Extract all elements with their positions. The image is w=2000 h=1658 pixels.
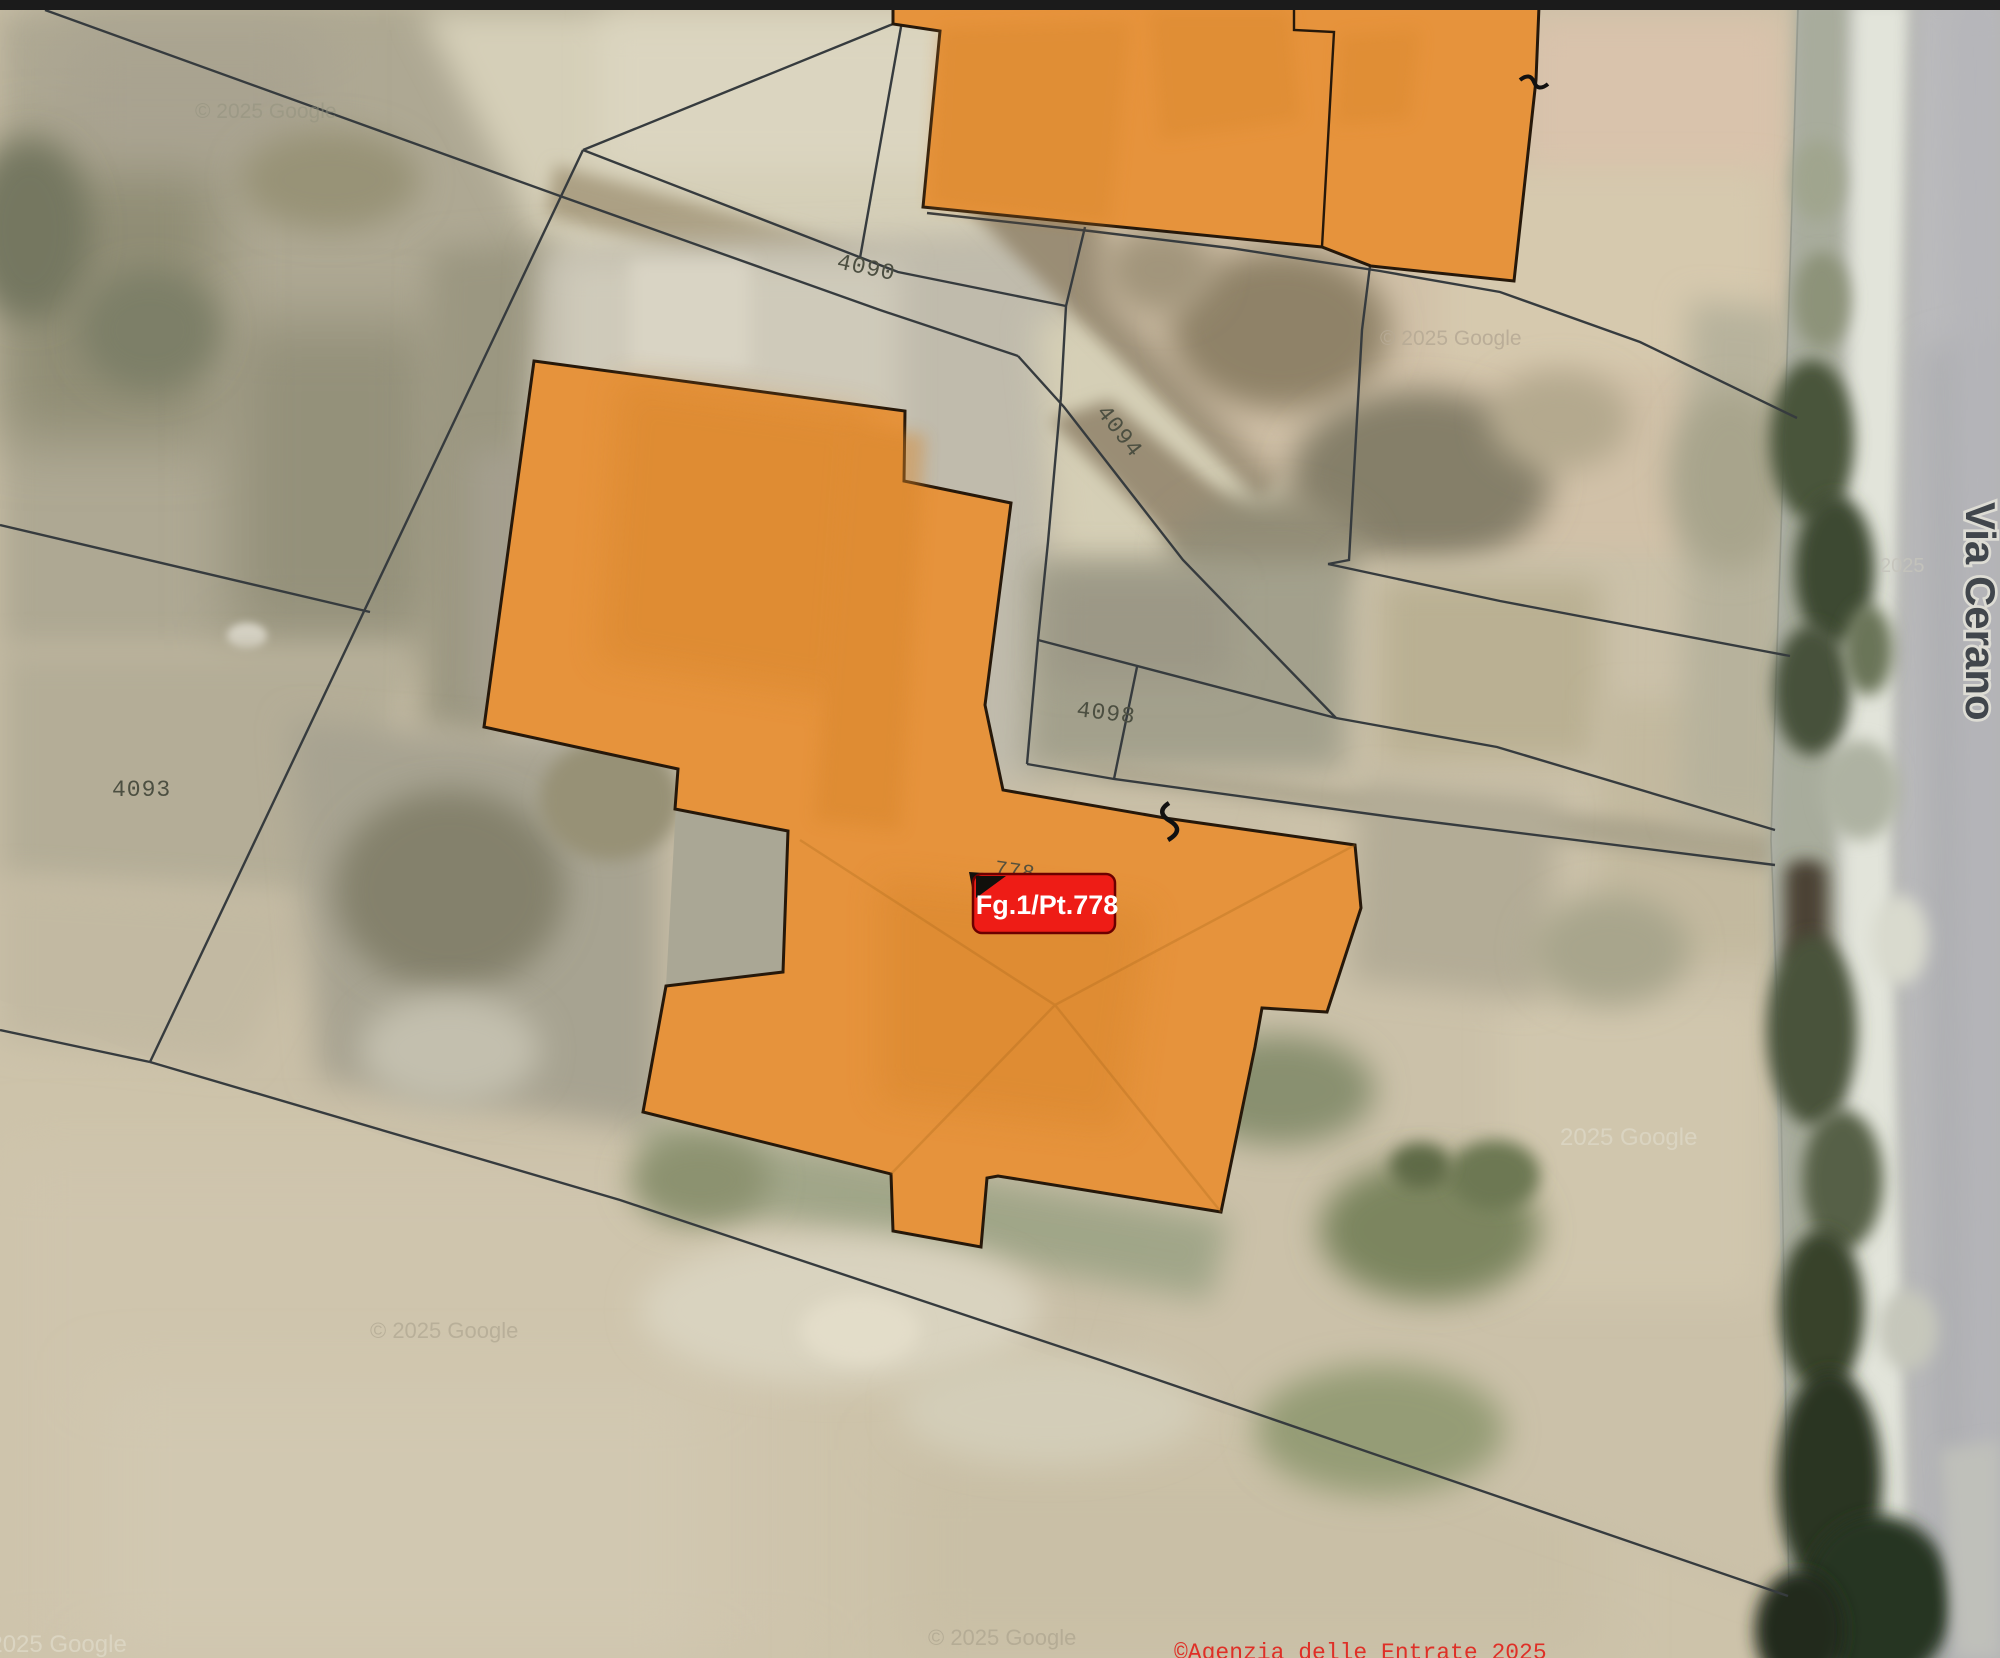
svg-text:© 2025 Google: © 2025 Google — [370, 1318, 518, 1343]
svg-text:2025: 2025 — [1880, 555, 1925, 577]
svg-text:©Agenzia delle Entrate 2025: ©Agenzia delle Entrate 2025 — [1174, 1640, 1547, 1658]
svg-text:© 2025 Google: © 2025 Google — [195, 100, 337, 123]
svg-text:Via Cerano: Via Cerano — [1957, 502, 2000, 721]
svg-text:© 2025 Google: © 2025 Google — [0, 1631, 127, 1658]
svg-text:4093: 4093 — [112, 777, 171, 803]
svg-text:Fg.1/Pt.778: Fg.1/Pt.778 — [976, 890, 1119, 920]
svg-text:2025 Google: 2025 Google — [1560, 1124, 1697, 1151]
svg-text:© 2025 Google: © 2025 Google — [928, 1625, 1076, 1650]
svg-text:© 2025 Google: © 2025 Google — [1380, 327, 1522, 350]
